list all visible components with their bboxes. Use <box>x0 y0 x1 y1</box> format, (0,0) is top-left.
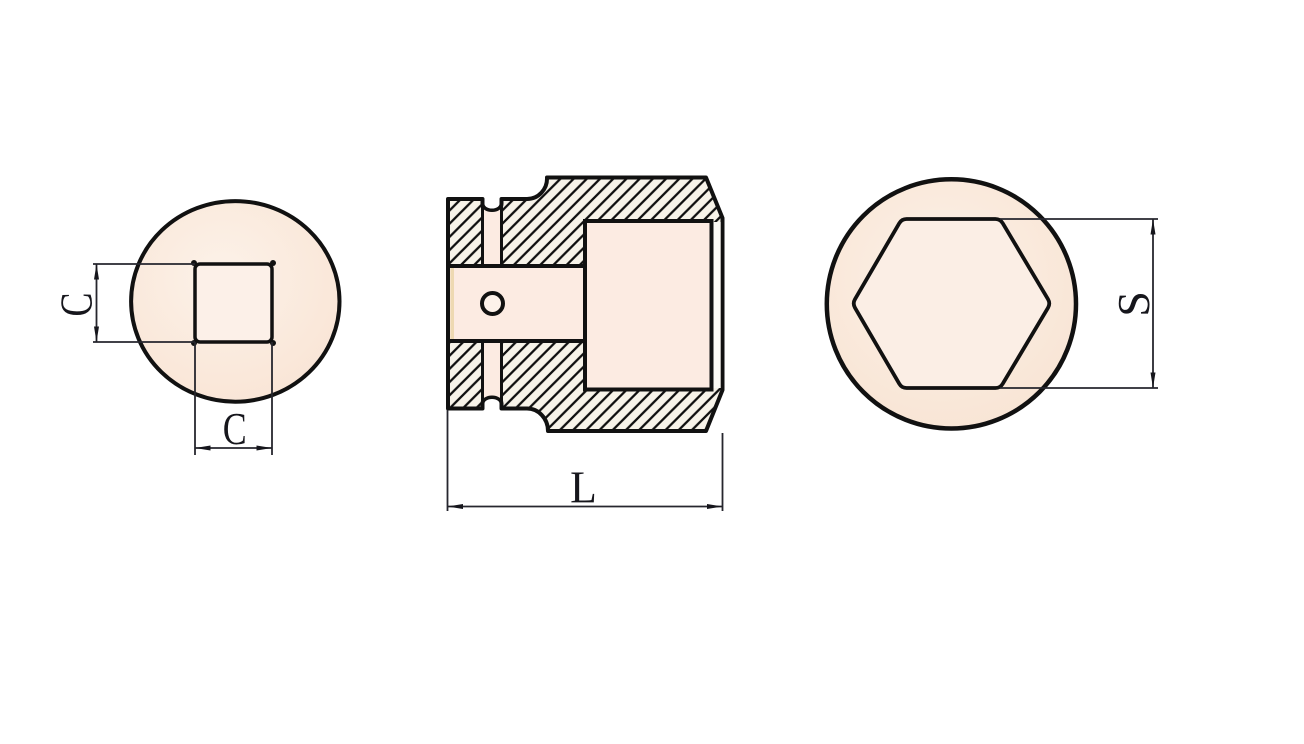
svg-text:L: L <box>570 461 597 512</box>
svg-text:C: C <box>50 293 101 317</box>
svg-text:S: S <box>1108 291 1159 317</box>
svg-text:C: C <box>223 403 247 454</box>
